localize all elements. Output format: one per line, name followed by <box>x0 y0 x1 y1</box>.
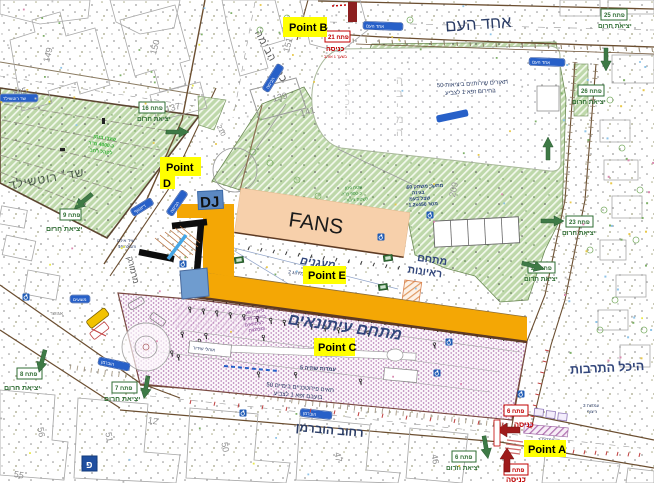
svg-text:פתח 8: פתח 8 <box>20 372 38 378</box>
svg-text:Point B: Point B <box>289 22 328 34</box>
svg-text:ריצוף: ריצוף <box>587 409 598 414</box>
svg-text:פתח 16: פתח 16 <box>142 106 163 112</box>
svg-text:כניסה: כניסה <box>506 475 526 483</box>
svg-text:יציאת חרום: יציאת חרום <box>104 396 140 403</box>
svg-text:51: 51 <box>103 431 115 443</box>
svg-text:שד רוטשילד: שד רוטשילד <box>3 96 27 101</box>
svg-text:פ: פ <box>86 460 93 471</box>
svg-text:אחד העם: אחד העם <box>532 59 550 65</box>
svg-text:56: 56 <box>35 426 47 438</box>
svg-text:כניסה: כניסה <box>326 46 345 53</box>
svg-text:50: 50 <box>219 441 231 453</box>
svg-text:יציאת חרום: יציאת חרום <box>572 99 606 106</box>
svg-text:יציאת חרום: יציאת חרום <box>46 226 82 233</box>
svg-text:יציאת חרום: יציאת חרום <box>524 276 558 283</box>
svg-text:DJ: DJ <box>200 194 220 212</box>
svg-text:פתח 21: פתח 21 <box>328 35 349 41</box>
svg-text:יציאת חרום: יציאת חרום <box>598 23 632 30</box>
svg-text:46: 46 <box>429 453 441 465</box>
svg-text:16mX1m: 16mX1m <box>118 244 136 249</box>
svg-text:כ-900 מ"ר: כ-900 מ"ר <box>342 191 363 197</box>
svg-text:בשער 1 אזהב: בשער 1 אזהב <box>324 54 347 59</box>
svg-text:פתח 6: פתח 6 <box>507 409 525 415</box>
svg-text:יציאת חרום: יציאת חרום <box>4 385 40 392</box>
svg-text:אחד העם: אחד העם <box>366 23 384 29</box>
svg-text:Point A: Point A <box>528 444 566 456</box>
svg-text:Point E: Point E <box>308 270 346 282</box>
svg-text:פתח 26: פתח 26 <box>581 89 602 95</box>
svg-text:פתח 9: פתח 9 <box>63 213 81 219</box>
svg-text:פתח 23: פתח 23 <box>569 220 590 226</box>
svg-text:55: 55 <box>13 469 25 481</box>
svg-text:פתח 6: פתח 6 <box>455 455 473 461</box>
svg-text:יציאת חרום: יציאת חרום <box>562 230 596 237</box>
svg-text:יציאת חרום: יציאת חרום <box>446 465 480 472</box>
svg-text:שטח גינון: שטח גינון <box>345 185 364 191</box>
svg-text:12: 12 <box>147 415 159 427</box>
svg-text:Point C: Point C <box>318 342 357 354</box>
svg-text:3 עמדות: 3 עמדות <box>583 403 600 408</box>
svg-text:47: 47 <box>332 451 344 463</box>
svg-text:יציאת חרום: יציאת חרום <box>137 116 171 123</box>
svg-text:מוצעים: מוצעים <box>73 297 86 302</box>
svg-text:פתח 25: פתח 25 <box>604 13 625 19</box>
svg-text:Point: Point <box>166 162 194 174</box>
svg-text:פתח 7: פתח 7 <box>115 386 133 392</box>
svg-text:שיד אילם: שיד אילם <box>117 238 135 243</box>
svg-text:אגושר: אגושר <box>50 311 64 317</box>
svg-text:D: D <box>163 178 171 190</box>
